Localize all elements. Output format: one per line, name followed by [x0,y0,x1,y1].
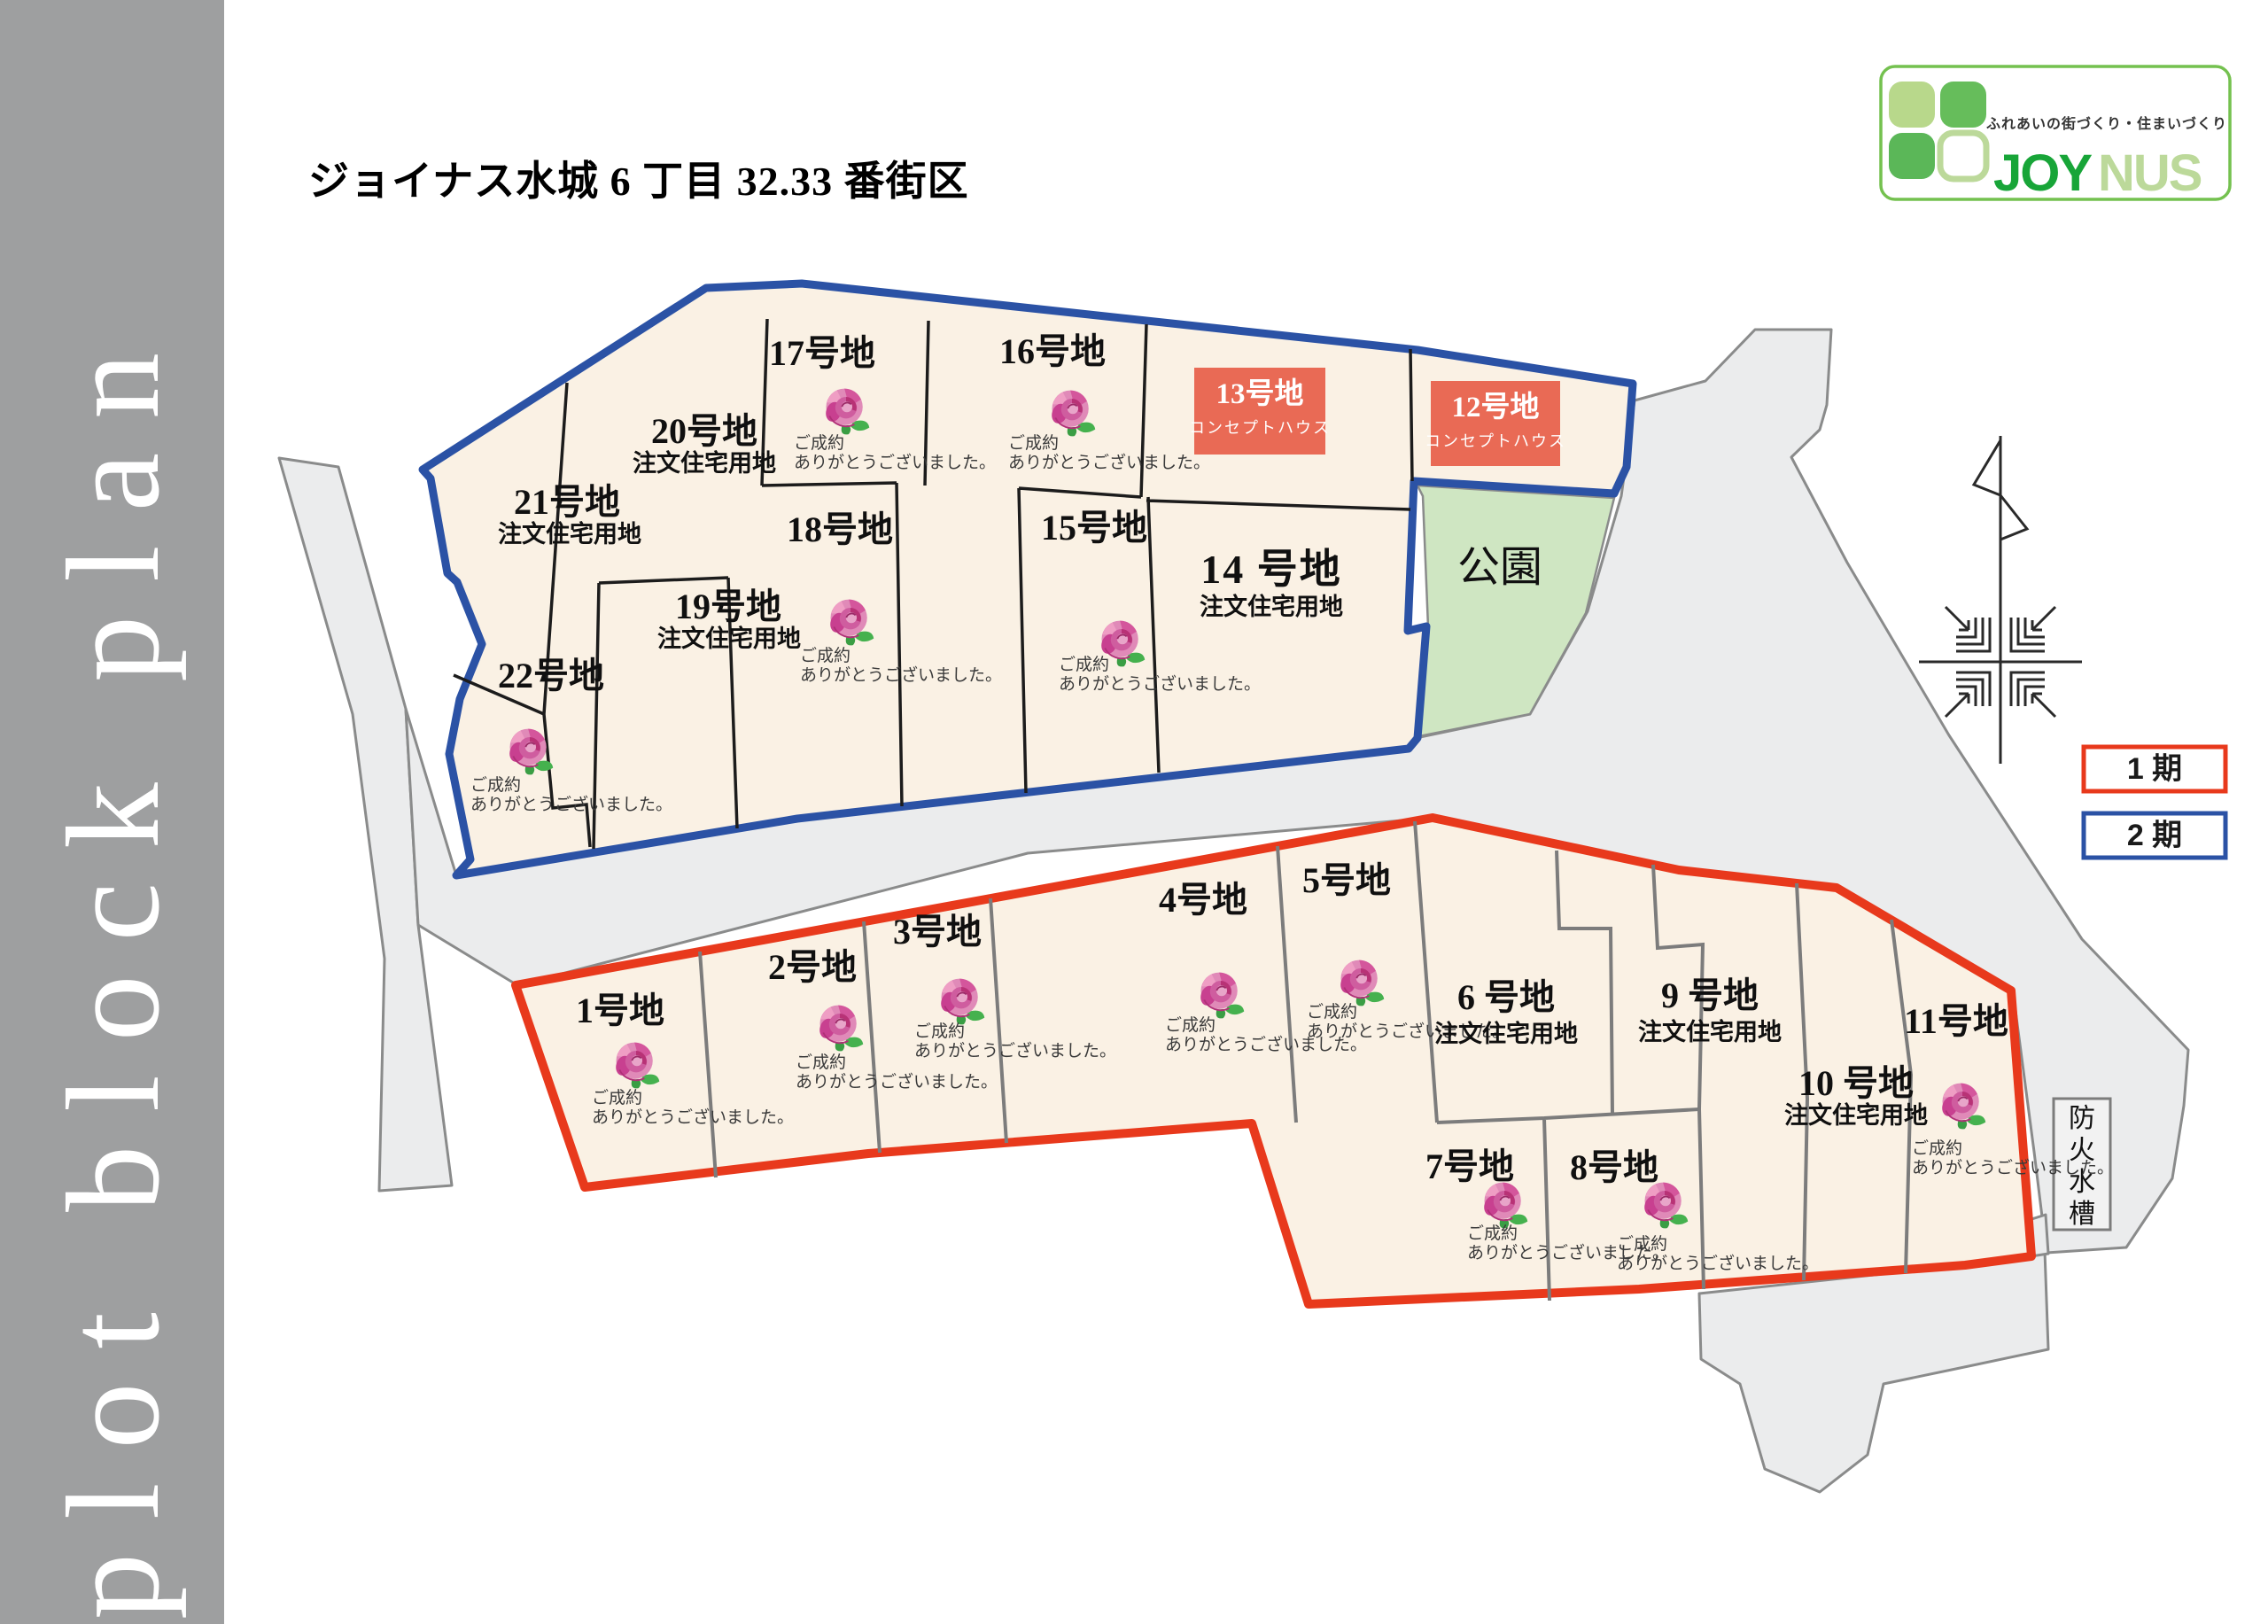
lot-21-use-label: 注文住宅用地 [498,520,641,548]
lot-2-sold-note-2: ありがとうございました。 [796,1071,998,1092]
legend-phase2-label: 2 期 [2127,819,2182,852]
lot-4-sold-note-1: ご成約 [1165,1015,1216,1035]
lot-3-sold-note-1: ご成約 [914,1022,965,1041]
lot-18-sold-note-1: ご成約 [800,646,850,665]
lot-8-label: 8号地 [1570,1147,1658,1187]
lot-13: 13号地コンセプトハウス [1189,368,1331,455]
lot-19: 19号地注文住宅用地 [657,587,801,652]
lot-8-sold-note-2: ありがとうございました。 [1617,1253,1819,1273]
lot-19-use-label: 注文住宅用地 [657,625,801,652]
plot-block-plan-page: 防火水槽 公園 1号地ご成約ありがとうございました。2号地ご成約ありがとうござい… [0,0,2268,1624]
lot-13-label: 13号地 [1216,377,1304,410]
lot-3-sold-note-2: ありがとうございました。 [914,1040,1116,1061]
lot-9-label: 9 号地 [1661,975,1759,1015]
lot-2-sold-note-1: ご成約 [796,1053,846,1072]
lot-22-label: 22号地 [498,656,604,695]
joynus-logo: ふれあいの街づくり・住まいづくり JOY NUS [1881,66,2230,202]
lot-10-use-label: 注文住宅用地 [1784,1101,1928,1129]
lot-14-label: 14 号地 [1200,547,1342,592]
lot-16-sold-note-2: ありがとうございました。 [1008,452,1210,472]
logo-name-bold: JOY [1993,144,2092,202]
lot-18-label: 18号地 [787,509,893,549]
lot-9-use-label: 注文住宅用地 [1638,1018,1782,1045]
lot-20: 20号地注文住宅用地 [633,411,776,477]
lot-7-sold-note-1: ご成約 [1467,1224,1518,1243]
lot-5-label: 5号地 [1302,860,1391,900]
lot-22-sold-note-1: ご成約 [470,775,521,795]
lot-1-sold-note-1: ご成約 [592,1088,642,1107]
lot-17-sold-note-1: ご成約 [794,433,844,453]
lot-17-sold-note-2: ありがとうございました。 [794,452,996,472]
lot-13-badge: コンセプトハウス [1189,419,1331,437]
lot-17-label: 17号地 [769,333,875,373]
lot-21-label: 21号地 [514,482,620,522]
legend-phase1-label: 1 期 [2127,752,2182,786]
lot-7-label: 7号地 [1425,1146,1514,1186]
lot-5-sold-note-1: ご成約 [1307,1002,1357,1022]
lot-1-label: 1号地 [576,991,664,1030]
logo-tagline: ふれあいの街づくり・住まいづくり [1986,115,2227,132]
lot-11-sold-note-1: ご成約 [1912,1138,1962,1158]
lot-10-label: 10 号地 [1798,1063,1914,1103]
lot-2-label: 2号地 [768,947,857,987]
page-title: ジョイナス水城 6 丁目 32.33 番街区 [308,159,969,204]
lot-8-sold-note-1: ご成約 [1617,1234,1667,1254]
lot-18-sold-note-2: ありがとうございました。 [800,664,1002,685]
lot-6-use-label: 注文住宅用地 [1434,1020,1578,1047]
lot-20-label: 20号地 [651,411,757,451]
lot-6-label: 6 号地 [1457,977,1555,1017]
logo-name-light: NUS [2098,144,2202,202]
lot-16-label: 16号地 [999,331,1106,371]
lot-22-sold-note-2: ありがとうございました。 [470,794,672,814]
lot-16-sold-note-1: ご成約 [1008,433,1059,453]
lot-14-use-label: 注文住宅用地 [1200,593,1343,620]
lot-4-label: 4号地 [1159,880,1247,920]
lot-15-sold-note-1: ご成約 [1059,655,1109,674]
lot-19-label: 19号地 [675,587,781,626]
lot-11-sold-note-2: ありがとうございました。 [1912,1157,2114,1177]
lot-14: 14 号地注文住宅用地 [1200,547,1343,620]
lot-15-label: 15号地 [1041,508,1147,548]
plan-canvas: 防火水槽 公園 1号地ご成約ありがとうございました。2号地ご成約ありがとうござい… [0,0,2268,1624]
lot-12-badge: コンセプトハウス [1425,432,1566,450]
park-label: 公園 [1457,544,1542,591]
sidebar: plot block plan [0,0,224,1624]
lot-3-label: 3号地 [893,912,982,952]
lot-10: 10 号地注文住宅用地 [1784,1063,1928,1129]
lot-21: 21号地注文住宅用地 [498,482,641,548]
lot-11-label: 11号地 [1904,1001,2008,1041]
lot-12: 12号地コンセプトハウス [1425,381,1566,466]
lot-12-label: 12号地 [1452,391,1540,423]
lot-20-use-label: 注文住宅用地 [633,449,776,477]
lot-15-sold-note-2: ありがとうございました。 [1059,673,1261,694]
lot-1-sold-note-2: ありがとうございました。 [592,1107,794,1127]
